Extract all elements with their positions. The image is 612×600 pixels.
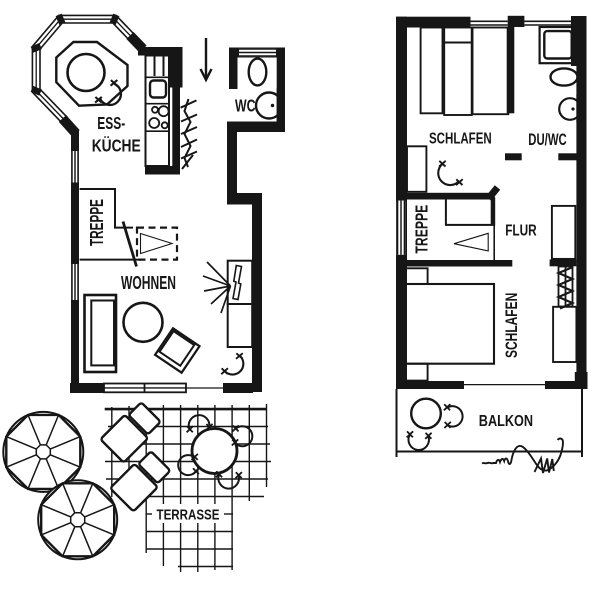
svg-text:BALKON: BALKON [479, 413, 533, 430]
svg-text:FLUR: FLUR [505, 223, 537, 240]
svg-text:DU/WC: DU/WC [528, 131, 566, 149]
svg-text:WOHNEN: WOHNEN [121, 272, 176, 293]
svg-text:SCHLAFEN: SCHLAFEN [429, 130, 492, 147]
svg-text:TERRASSE: TERRASSE [157, 507, 220, 523]
svg-text:KÜCHE: KÜCHE [92, 136, 141, 156]
svg-text:TREPPE: TREPPE [87, 199, 107, 246]
svg-text:SCHLAFEN: SCHLAFEN [502, 293, 521, 358]
svg-text:TREPPE: TREPPE [412, 205, 432, 254]
svg-text:WC: WC [235, 96, 256, 116]
svg-text:ESS-: ESS- [97, 113, 125, 133]
